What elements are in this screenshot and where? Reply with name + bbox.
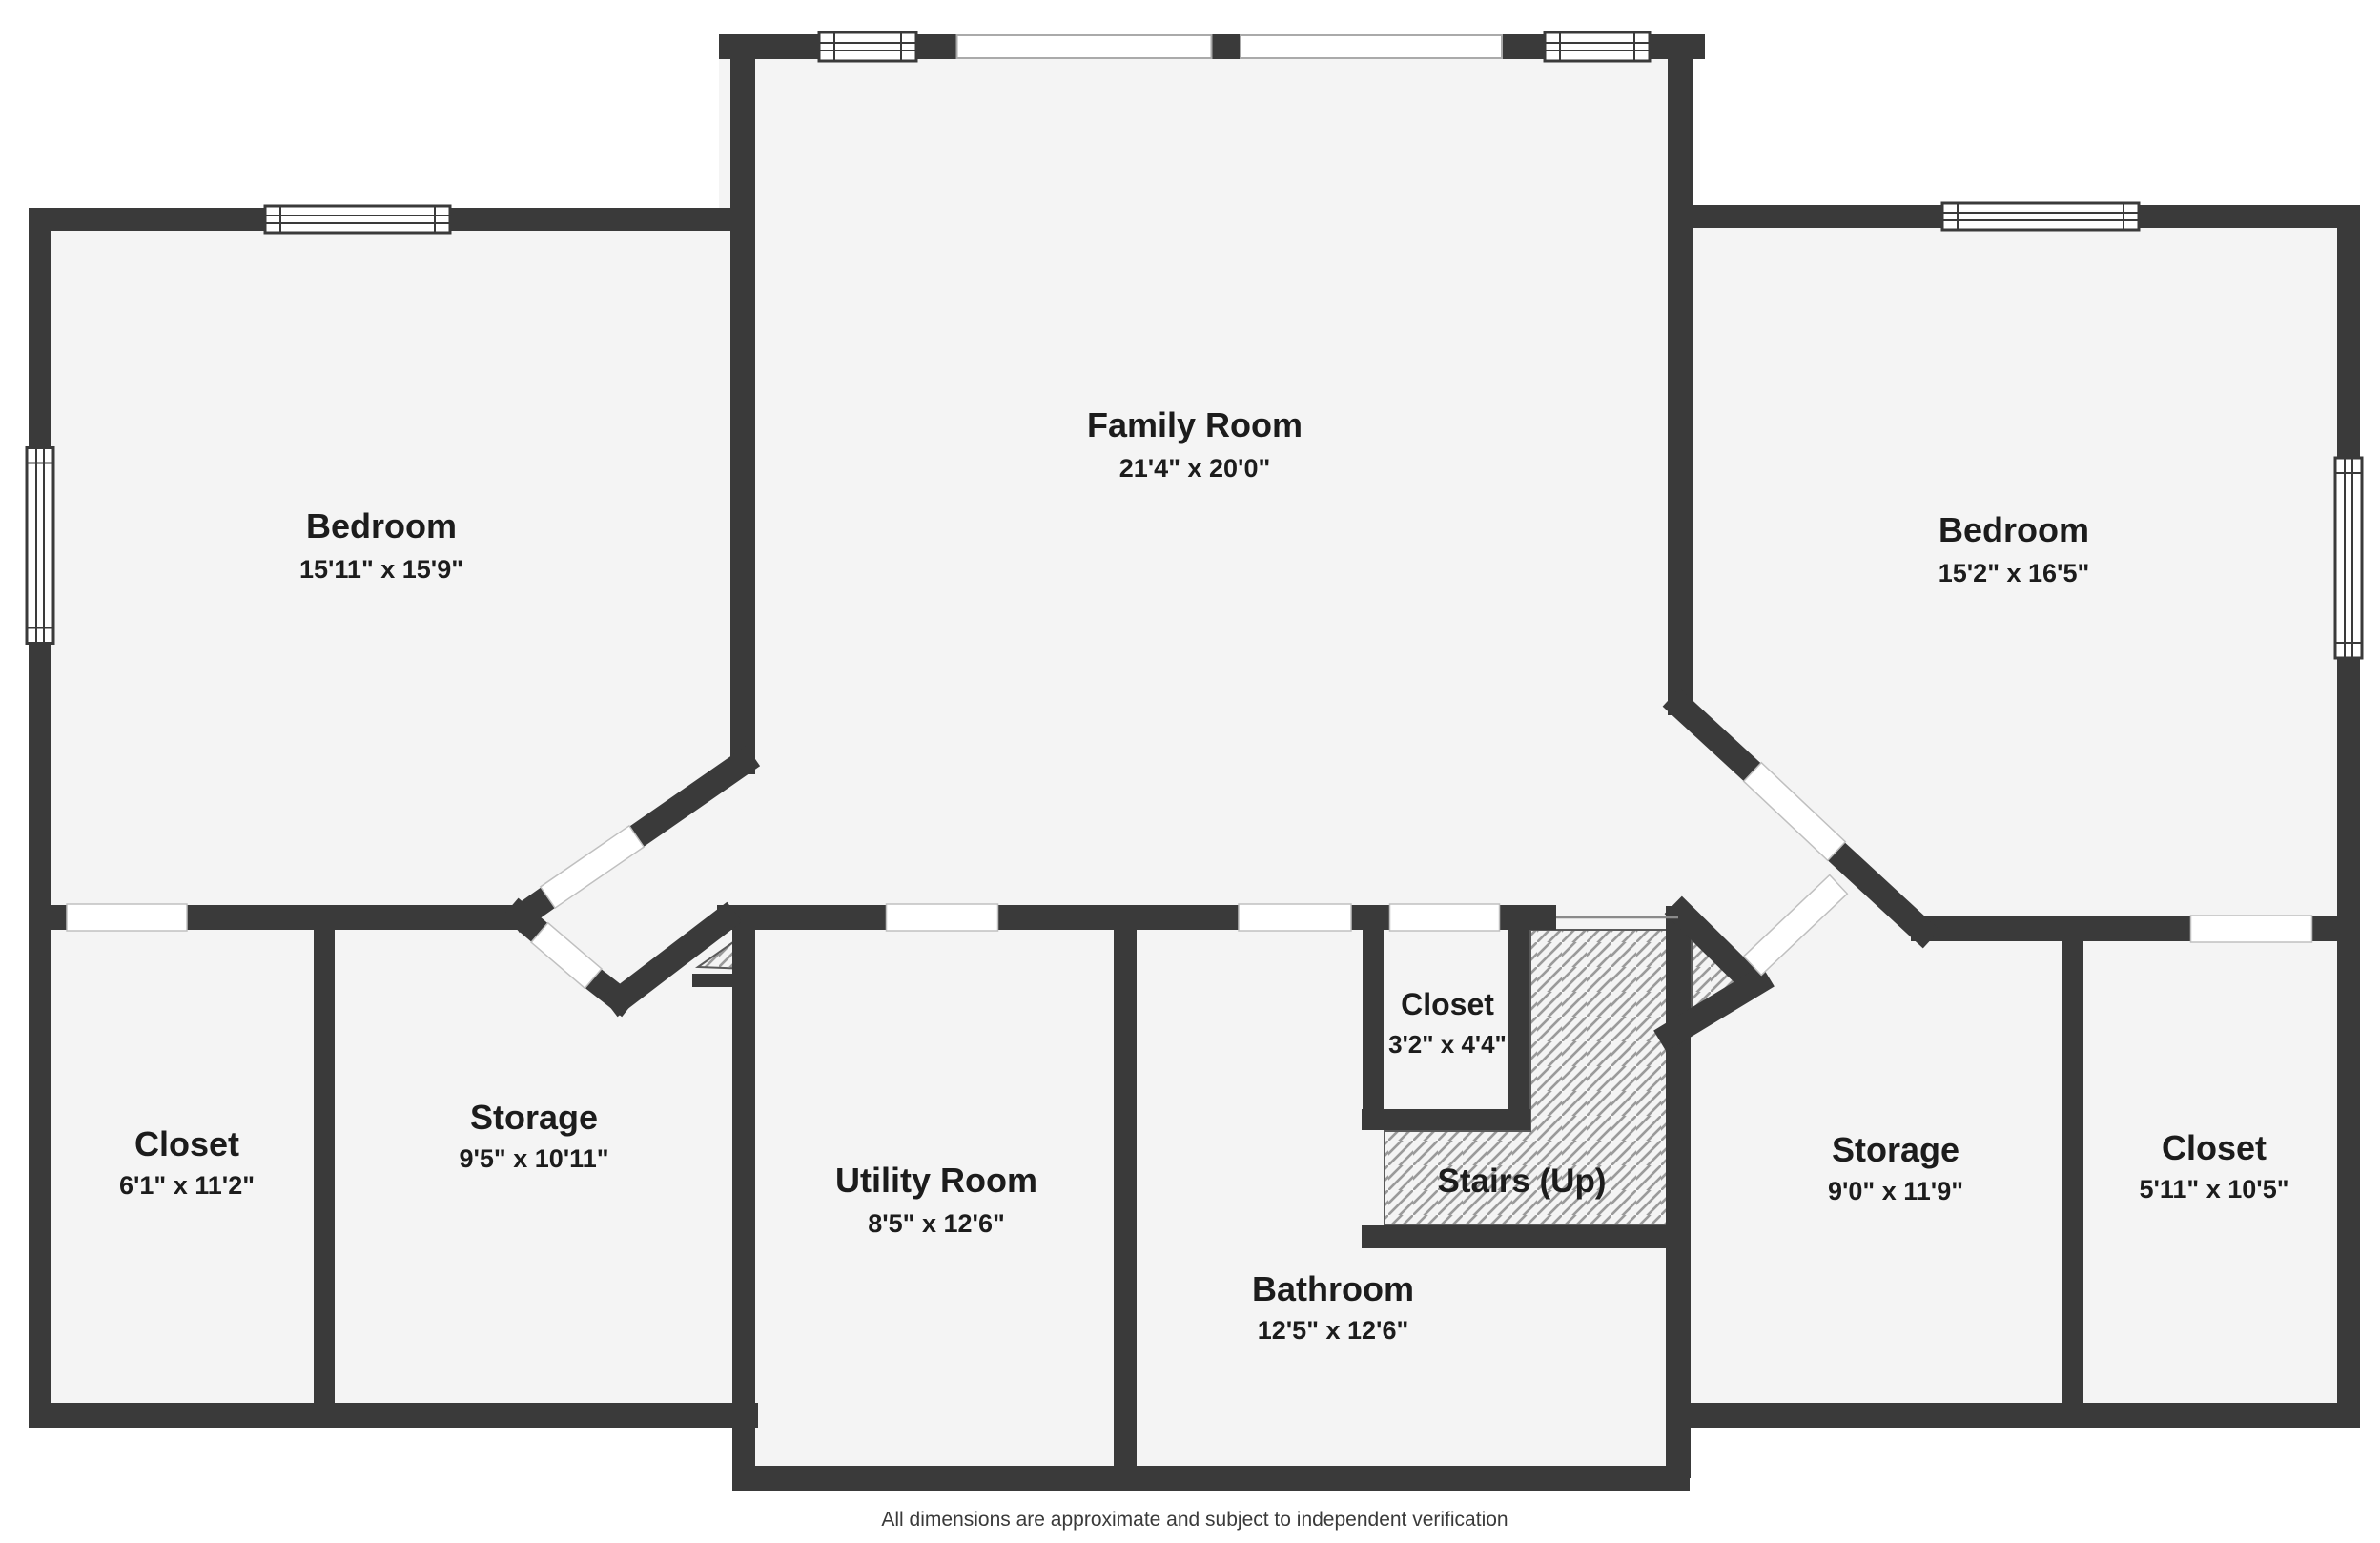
- window: [2335, 458, 2362, 658]
- window: [1942, 203, 2139, 230]
- room-dims-storage-left: 9'5" x 10'11": [459, 1144, 608, 1173]
- room-dims-utility-room: 8'5" x 12'6": [868, 1209, 1005, 1238]
- window: [265, 206, 450, 233]
- room-label-closet-left: Closet: [134, 1124, 239, 1163]
- room-label-stairs: Stairs (Up): [1438, 1162, 1607, 1200]
- room-dims-closet-right: 5'11" x 10'5": [2139, 1175, 2288, 1204]
- room-dims-storage-right: 9'0" x 11'9": [1828, 1177, 1963, 1205]
- room-label-closet-small: Closet: [1401, 987, 1494, 1021]
- room-dims-bedroom-left: 15'11" x 15'9": [299, 555, 463, 584]
- floor-plan-svg: Family Room21'4" x 20'0"Bedroom15'11" x …: [0, 0, 2380, 1543]
- floor-layer: [29, 34, 2360, 1490]
- room-label-storage-right: Storage: [1832, 1130, 1959, 1169]
- wall-opening-window: [1241, 35, 1502, 58]
- door-opening: [1239, 904, 1351, 931]
- room-dims-closet-small: 3'2" x 4'4": [1388, 1030, 1507, 1059]
- room-dims-family-room: 21'4" x 20'0": [1119, 454, 1271, 483]
- wall: [520, 916, 540, 933]
- disclaimer-text: All dimensions are approximate and subje…: [881, 1509, 1508, 1531]
- room-label-bathroom: Bathroom: [1252, 1269, 1414, 1308]
- room-dims-bathroom: 12'5" x 12'6": [1258, 1316, 1409, 1345]
- door-opening: [2191, 916, 2312, 942]
- room-label-bedroom-left: Bedroom: [306, 506, 457, 545]
- floor-plan-canvas: Family Room21'4" x 20'0"Bedroom15'11" x …: [0, 0, 2380, 1543]
- room-label-closet-right: Closet: [2162, 1128, 2267, 1167]
- room-label-storage-left: Storage: [470, 1098, 598, 1137]
- window: [27, 448, 53, 644]
- window: [1545, 32, 1650, 61]
- room-dims-closet-left: 6'1" x 11'2": [119, 1171, 255, 1200]
- wall-opening-window: [957, 35, 1212, 58]
- window: [819, 32, 916, 61]
- door-opening: [67, 904, 187, 931]
- door-opening: [1390, 904, 1500, 931]
- room-label-family-room: Family Room: [1087, 405, 1303, 444]
- room-dims-bedroom-right: 15'2" x 16'5": [1939, 559, 2090, 587]
- room-floor: [719, 34, 1693, 932]
- room-label-bedroom-right: Bedroom: [1939, 510, 2089, 549]
- room-label-utility-room: Utility Room: [835, 1161, 1037, 1200]
- door-opening: [887, 904, 998, 931]
